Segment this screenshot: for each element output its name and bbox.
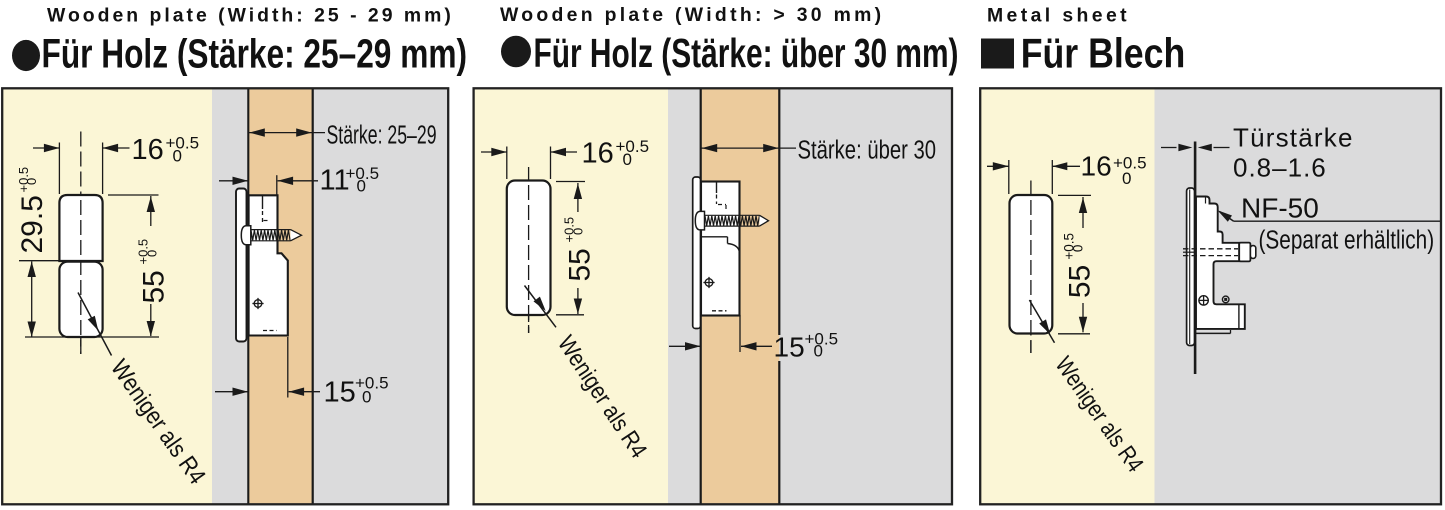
svg-text:0: 0	[357, 177, 366, 196]
svg-text:Stärke: 25–29: Stärke: 25–29	[327, 120, 437, 149]
svg-text:55: 55	[564, 248, 597, 281]
svg-text:Für Holz (Stärke: 25–29 mm): Für Holz (Stärke: 25–29 mm)	[42, 31, 468, 77]
svg-text:0: 0	[362, 387, 371, 406]
svg-text:0: 0	[1071, 245, 1086, 253]
svg-text:0.8–1.6: 0.8–1.6	[1233, 153, 1327, 183]
svg-text:0: 0	[623, 150, 632, 169]
svg-text:(Separat erhältlich): (Separat erhältlich)	[1259, 225, 1435, 254]
svg-text:Für Blech: Für Blech	[1021, 31, 1186, 77]
svg-text:55: 55	[137, 270, 170, 303]
svg-text:+0.5: +0.5	[355, 374, 389, 393]
svg-text:Metal sheet: Metal sheet	[987, 5, 1130, 27]
svg-text:16: 16	[132, 134, 164, 166]
svg-text:0: 0	[814, 342, 823, 361]
svg-text:55: 55	[1064, 265, 1097, 298]
svg-text:Wooden plate (Width: 25 - 29 m: Wooden plate (Width: 25 - 29 mm)	[47, 5, 454, 27]
svg-text:Wooden plate (Width: > 30 mm): Wooden plate (Width: > 30 mm)	[500, 4, 884, 26]
svg-text:Für Holz (Stärke: über 30 mm): Für Holz (Stärke: über 30 mm)	[534, 30, 959, 76]
svg-text:+0.5: +0.5	[616, 137, 650, 156]
svg-text:15: 15	[324, 377, 356, 409]
svg-text:Stärke: über 30: Stärke: über 30	[798, 135, 937, 164]
svg-text:16: 16	[582, 138, 614, 170]
svg-text:0: 0	[173, 146, 182, 165]
svg-text:29.5: 29.5	[16, 195, 49, 253]
svg-text:0: 0	[571, 228, 586, 235]
svg-text:+0.5: +0.5	[166, 134, 200, 153]
svg-text:16: 16	[1081, 151, 1112, 182]
svg-text:NF-50: NF-50	[1241, 193, 1319, 224]
svg-text:0: 0	[1122, 169, 1131, 188]
svg-text:15: 15	[774, 331, 805, 362]
svg-text:0: 0	[24, 178, 39, 185]
svg-text:0: 0	[144, 250, 159, 257]
svg-text:Türstärke: Türstärke	[1233, 122, 1354, 152]
